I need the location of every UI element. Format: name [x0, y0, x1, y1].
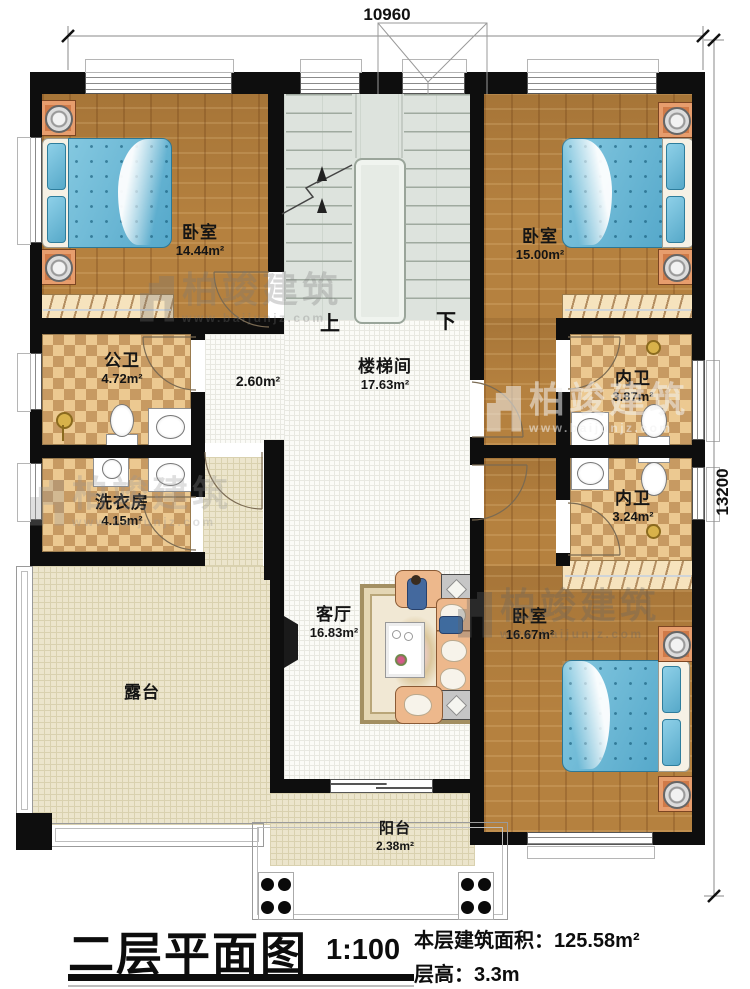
toilet-icon [110, 404, 134, 437]
wall [692, 520, 705, 845]
room-label-stairwell: 楼梯间 17.63m² [358, 356, 412, 394]
washer-door [102, 459, 122, 479]
wall [191, 334, 205, 340]
balcony-column-group [458, 872, 494, 920]
title-underline [68, 974, 414, 981]
bed-pillow [662, 666, 681, 713]
side-table [441, 690, 471, 720]
nightstand [658, 776, 694, 812]
washing-machine-icon [93, 453, 129, 487]
lamp-icon [663, 107, 691, 135]
window [30, 353, 42, 410]
wall [191, 392, 205, 497]
wall [30, 318, 284, 334]
floor-corridor-terrace [203, 457, 263, 566]
column-icon [261, 901, 274, 914]
column-icon [278, 878, 291, 891]
window [85, 72, 232, 94]
window-sill [402, 59, 467, 73]
column-icon [461, 878, 474, 891]
window [692, 467, 705, 520]
floor-height-value: 3.3m [474, 964, 520, 986]
toilet-icon [641, 404, 667, 438]
sofa-cushion [440, 668, 466, 690]
sliding-door [330, 779, 433, 793]
stair-flight-left [286, 94, 352, 316]
person-head [411, 575, 421, 585]
wall [556, 318, 705, 334]
sofa-cushion [441, 640, 467, 662]
wall [433, 779, 484, 793]
wall [360, 72, 402, 94]
dimension-width: 10960 [352, 5, 422, 25]
floor-area-row: 本层建筑面积：125.58m² [414, 924, 640, 953]
window [300, 72, 360, 94]
tv-icon [284, 616, 298, 668]
wall [30, 552, 205, 566]
bed-blanket [118, 139, 168, 245]
stair-flight-right [404, 94, 470, 316]
nightstand [658, 626, 694, 662]
floor-area-value: 125.58m² [554, 930, 640, 952]
cup-icon [404, 632, 413, 641]
nightstand [658, 249, 694, 285]
room-label-living: 客厅 16.83m² [310, 604, 358, 642]
window-sill [300, 59, 362, 73]
wall [30, 445, 205, 458]
column [16, 813, 52, 850]
title-underline-2 [68, 985, 414, 987]
floor-corridor-lower [484, 458, 556, 566]
sink-counter [148, 408, 192, 446]
lamp-icon [45, 105, 73, 133]
wall [653, 832, 705, 845]
bed-pillow [662, 719, 681, 766]
floor-corridor-upper [484, 318, 556, 445]
wall [284, 779, 330, 793]
floor-drain-icon [646, 524, 661, 539]
sink-counter [571, 412, 609, 446]
window [692, 360, 705, 440]
dimension-height: 13200 [713, 463, 733, 521]
stair-down-label: 下 [436, 305, 456, 334]
lamp-icon [663, 631, 691, 659]
window-sill [85, 59, 234, 73]
dimension-tick [62, 30, 709, 42]
terrace-railing [16, 566, 33, 815]
floor-drain-icon [646, 340, 661, 355]
person-figure [439, 616, 463, 634]
window-sill [706, 360, 720, 442]
terrace-railing [50, 823, 264, 847]
bed-pillow [47, 143, 66, 190]
room-label-bedroom-top-right: 卧室 15.00m² [516, 226, 564, 264]
room-label-balcony: 阳台 2.38m² [376, 820, 414, 854]
sink-counter [148, 456, 192, 492]
bed-pillow [666, 196, 685, 243]
room-label-ensuite-2: 内卫 3.24m² [612, 488, 653, 526]
nightstand [658, 102, 694, 138]
column-icon [278, 901, 291, 914]
floor-drain-stem [62, 425, 64, 441]
wardrobe [562, 560, 694, 590]
room-label-hallway: 2.60m² [236, 373, 280, 391]
window-sill [17, 463, 31, 522]
window [402, 72, 465, 94]
room-label-bedroom-bottom-right: 卧室 16.67m² [506, 606, 554, 644]
wall [470, 518, 484, 845]
wall [556, 334, 570, 340]
bed-pillow [47, 196, 66, 243]
sink-icon [156, 415, 185, 439]
sink-icon [156, 463, 185, 486]
chair-cushion [404, 694, 432, 716]
lamp-icon [45, 254, 73, 282]
window-sill [527, 59, 659, 73]
sink-icon [577, 462, 604, 485]
sink-icon [577, 418, 604, 441]
wall [270, 580, 284, 793]
plan-scale: 1:100 [326, 934, 400, 967]
window-sill [17, 353, 31, 412]
wall [470, 445, 705, 458]
floor-drain-icon [56, 412, 73, 429]
window [30, 137, 42, 243]
floor-height-label: 层高： [414, 964, 474, 986]
window [30, 463, 42, 520]
nightstand [40, 100, 76, 136]
table-decor [445, 578, 466, 599]
wall [30, 243, 42, 353]
room-label-bedroom-top-left: 卧室 14.44m² [176, 222, 224, 260]
window [527, 72, 657, 94]
cup-icon [392, 630, 401, 639]
wall [470, 334, 484, 380]
nightstand [40, 249, 76, 285]
bed-pillow [666, 143, 685, 190]
wall [556, 553, 570, 566]
table-decor [445, 694, 466, 715]
wall [692, 72, 705, 360]
room-label-public-bath: 公卫 4.72m² [101, 350, 142, 388]
wall [470, 94, 484, 334]
coffee-table [385, 622, 425, 678]
flower-decor [394, 654, 408, 666]
sink-counter [571, 456, 609, 490]
wall [264, 440, 284, 580]
wall [465, 72, 527, 94]
window-sill [527, 846, 655, 859]
window-sill [17, 137, 31, 245]
wall [30, 72, 42, 137]
lamp-icon [663, 254, 691, 282]
floor-plan: 10960 13200 卧室 14.44m² 卧室 15.00m² 卧室 16.… [0, 0, 750, 989]
window [527, 832, 653, 845]
floor-height-row: 层高：3.3m [414, 958, 520, 987]
lamp-icon [663, 781, 691, 809]
column-icon [261, 878, 274, 891]
balcony-column-group [258, 872, 294, 920]
column-icon [478, 901, 491, 914]
stair-up-label: 上 [320, 307, 340, 336]
column-icon [478, 878, 491, 891]
floor-area-label: 本层建筑面积： [414, 930, 554, 952]
room-label-ensuite-1: 内卫 3.87m² [612, 368, 653, 406]
wall [268, 94, 284, 272]
column-icon [461, 901, 474, 914]
wall [232, 72, 300, 94]
room-label-laundry: 洗衣房 4.15m² [95, 492, 149, 530]
room-label-terrace: 露台 [124, 682, 160, 703]
stair-center-rail [354, 158, 406, 324]
